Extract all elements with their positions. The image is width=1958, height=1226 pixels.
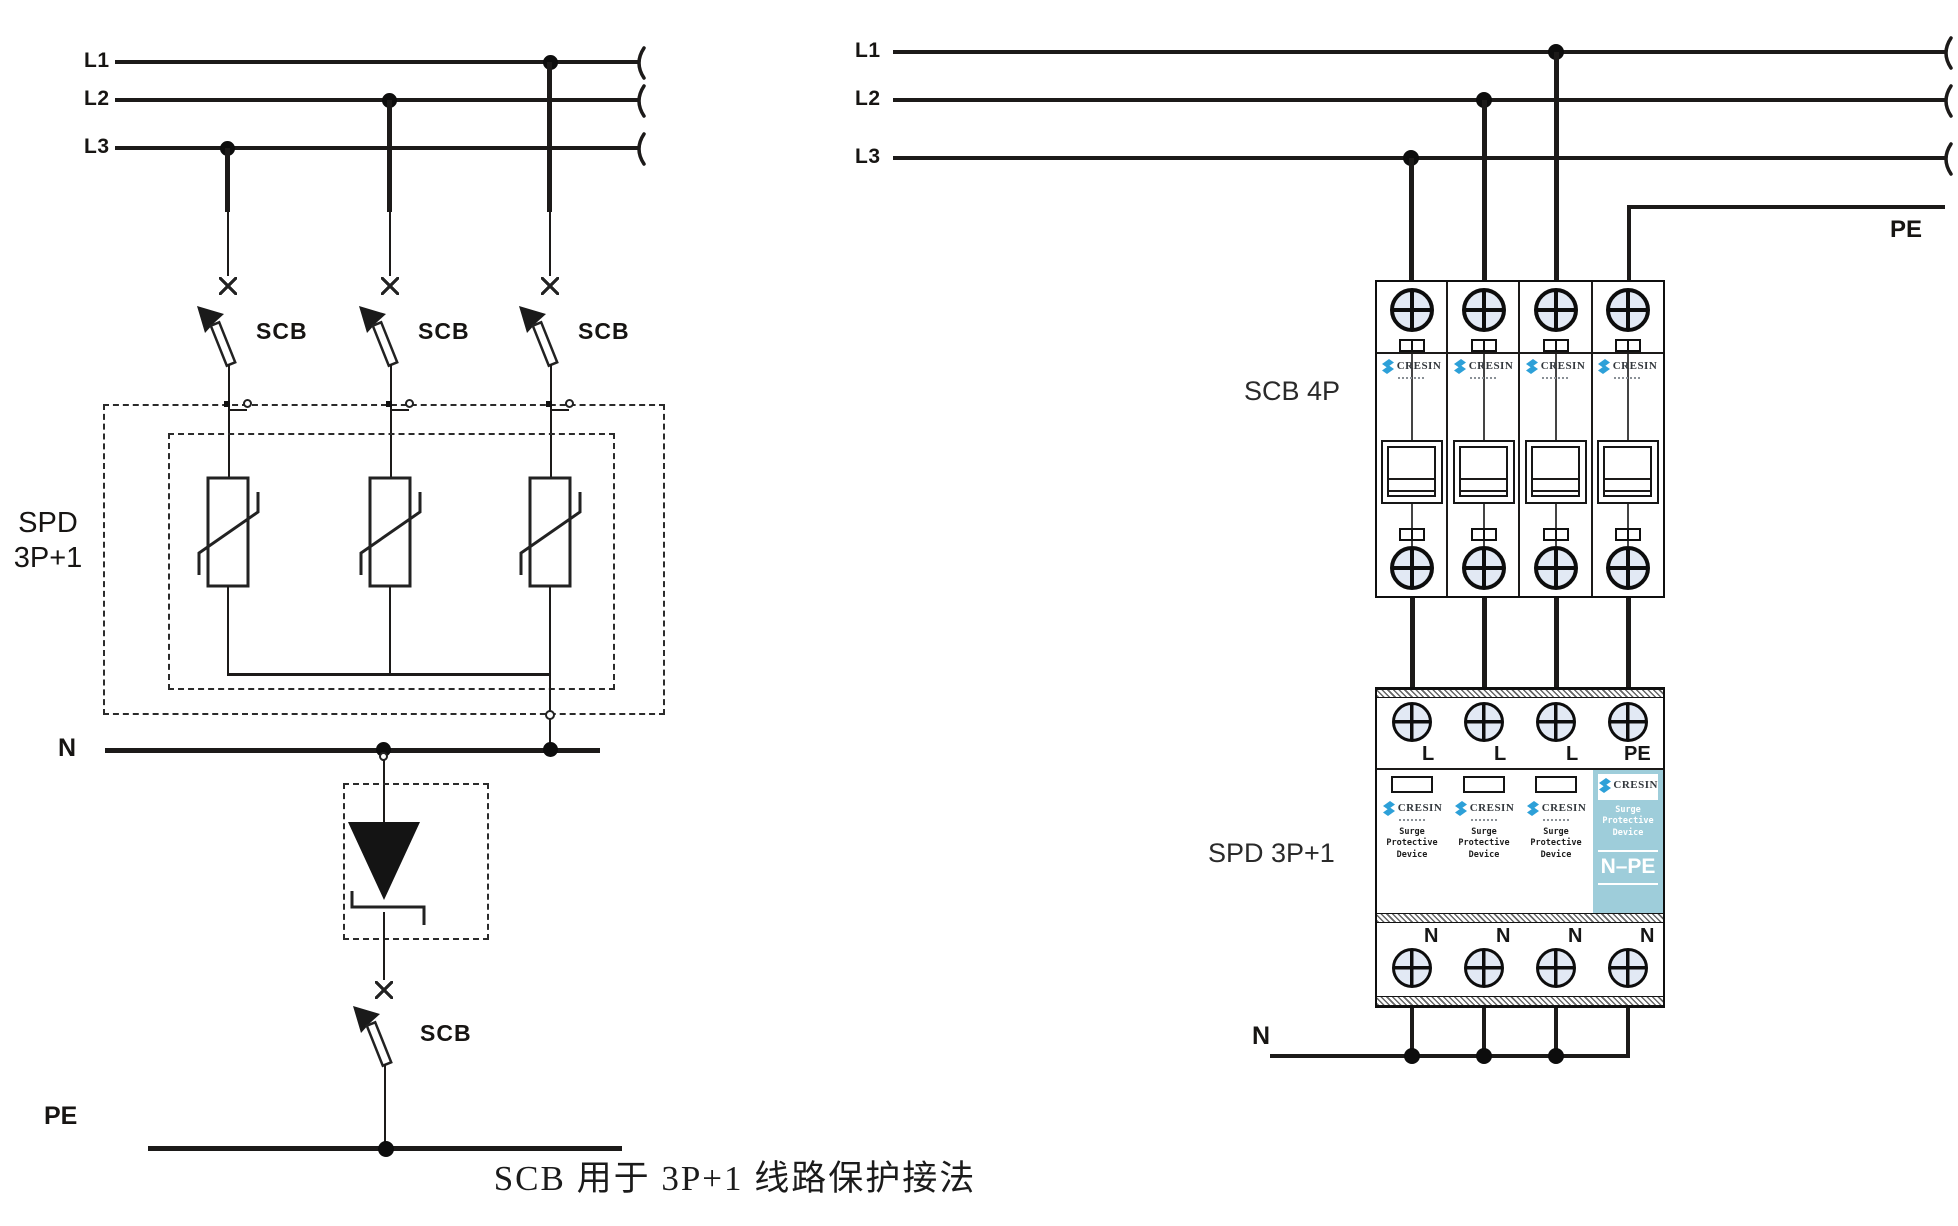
screw-terminal-icon	[1390, 288, 1434, 332]
scb-label: SCB	[418, 320, 470, 343]
line-break-arc-icon	[633, 84, 647, 118]
phase-label-l1: L1	[84, 50, 110, 71]
neutral-label: N	[58, 736, 76, 761]
phase-line-l1	[893, 50, 1945, 54]
wire	[547, 62, 552, 212]
terminal-notch	[1615, 528, 1641, 541]
wire	[549, 212, 551, 276]
brand-name: CRESIN	[1469, 361, 1514, 372]
brand-logo: CRESIN	[1383, 800, 1441, 821]
device-text-line1: Surge Protective	[1521, 827, 1591, 850]
spd-terminal-label: L	[1494, 744, 1506, 764]
wire	[1554, 52, 1559, 300]
screw-terminal-icon	[1390, 546, 1434, 590]
wire	[225, 148, 230, 212]
terminal-notch	[1543, 339, 1569, 352]
neutral-terminal-label: N	[1424, 926, 1438, 946]
junction-dot	[543, 742, 558, 757]
disconnect-x-icon	[541, 277, 559, 295]
handle-line	[1605, 490, 1650, 492]
breaker-handle-inner	[1603, 446, 1652, 497]
line-break-arc-icon	[1940, 142, 1954, 176]
phase-label-l2: L2	[855, 88, 881, 109]
wire	[387, 100, 392, 212]
brand-glyph-icon	[1382, 800, 1396, 817]
brand-logo: CRESIN	[1382, 358, 1440, 379]
line-break-arc-icon	[1940, 84, 1954, 118]
handle-line	[1461, 478, 1506, 480]
module-divider	[1377, 352, 1663, 354]
scb-label: SCB	[256, 320, 308, 343]
scb-4p-label: SCB 4P	[1244, 378, 1340, 405]
breaker-handle	[1453, 440, 1515, 504]
line-break-arc-icon	[633, 46, 647, 80]
screw-terminal-icon	[1608, 702, 1648, 742]
phase-label-l2: L2	[84, 88, 110, 109]
brand-name: CRESIN	[1470, 803, 1515, 814]
spd-window	[1391, 776, 1433, 793]
plug-contact-link	[551, 409, 569, 411]
plug-contact-link	[391, 409, 409, 411]
brand-glyph-icon	[1526, 800, 1540, 817]
plug-contact-circle	[545, 710, 555, 720]
breaker-handle-inner	[1459, 446, 1508, 497]
din-rail-strip	[1377, 913, 1663, 923]
handle-line	[1461, 490, 1506, 492]
junction-dot	[1404, 1048, 1420, 1064]
device-text-line2: Device	[1377, 850, 1447, 861]
diagram-caption: SCB 用于 3P+1 线路保护接法	[380, 1150, 1090, 1201]
plug-contact-circle	[405, 399, 414, 408]
plug-contact-circle	[565, 399, 574, 408]
device-text-line2: Device	[1449, 850, 1519, 861]
npe-brand-box: CRESIN	[1598, 774, 1658, 800]
screw-terminal-icon	[1462, 288, 1506, 332]
scb-label: SCB	[578, 320, 630, 343]
varistor-icon	[515, 473, 585, 593]
brand-name: CRESIN	[1398, 803, 1443, 814]
brand-glyph-icon	[1598, 777, 1611, 794]
wire	[1626, 1008, 1630, 1058]
breaker-handle	[1381, 440, 1443, 504]
plug-contact	[386, 401, 392, 407]
plug-contact-circle	[243, 399, 252, 408]
device-text-line1: Surge Protective	[1594, 805, 1662, 828]
brand-name: CRESIN	[1397, 361, 1442, 372]
disconnect-x-icon	[219, 277, 237, 295]
breaker-handle	[1525, 440, 1587, 504]
phase-line-l3	[115, 146, 638, 150]
pe-feed-line	[1627, 205, 1945, 209]
plug-contact-link	[229, 409, 247, 411]
device-type-text: Surge Protective Device	[1449, 827, 1519, 861]
wire	[549, 586, 551, 675]
phase-label-l3: L3	[855, 146, 881, 167]
neutral-line	[105, 748, 600, 753]
screw-terminal-icon	[1464, 948, 1504, 988]
phase-line-l2	[893, 98, 1945, 102]
handle-line	[1533, 490, 1578, 492]
handle-line	[1533, 478, 1578, 480]
device-type-text: Surge Protective Device	[1594, 805, 1662, 839]
left-schematic-diagram: L1 L2 L3 SCB SCB SCB	[0, 0, 700, 1226]
plug-contact	[224, 401, 230, 407]
spd-terminal-label: L	[1422, 744, 1434, 764]
din-rail-strip	[1377, 689, 1663, 698]
spd-window	[1535, 776, 1577, 793]
brand-logo: CRESIN	[1598, 358, 1656, 379]
brand-subtext-dots	[1470, 376, 1496, 379]
spd-terminal-label: PE	[1624, 744, 1651, 764]
brand-subtext-dots	[1471, 818, 1497, 821]
breaker-handle	[1597, 440, 1659, 504]
brand-subtext-dots	[1399, 818, 1425, 821]
screw-terminal-icon	[1606, 288, 1650, 332]
brand-glyph-icon	[1454, 800, 1468, 817]
brand-name: CRESIN	[1613, 780, 1658, 791]
neutral-bus-label: N	[1252, 1024, 1270, 1049]
terminal-notch	[1471, 339, 1497, 352]
screw-terminal-icon	[1534, 546, 1578, 590]
device-type-text: Surge Protective Device	[1377, 827, 1447, 861]
module-separator	[1518, 282, 1520, 596]
brand-name: CRESIN	[1541, 361, 1586, 372]
neutral-terminal-label: N	[1496, 926, 1510, 946]
phase-label-l3: L3	[84, 136, 110, 157]
junction-dot	[1548, 1048, 1564, 1064]
phase-line-l1	[115, 60, 638, 64]
screw-terminal-icon	[1536, 702, 1576, 742]
spd-label-line2: 3P+1	[4, 541, 92, 576]
brand-logo: CRESIN	[1455, 800, 1513, 821]
scb-label: SCB	[420, 1022, 472, 1045]
module-separator	[1591, 282, 1593, 596]
pe-label: PE	[44, 1104, 77, 1129]
npe-divider-line	[1598, 850, 1658, 852]
neutral-terminal-label: N	[1640, 926, 1654, 946]
screw-terminal-icon	[1534, 288, 1578, 332]
terminal-notch	[1615, 339, 1641, 352]
spd-label-line1: SPD	[4, 506, 92, 541]
common-bus-wire	[227, 673, 551, 676]
line-break-arc-icon	[1940, 36, 1954, 70]
brand-glyph-icon	[1453, 358, 1467, 375]
pe-feed-label: PE	[1890, 218, 1922, 242]
device-text-line2: Device	[1594, 828, 1662, 839]
wire	[1482, 100, 1487, 300]
device-text-line2: Device	[1521, 850, 1591, 861]
device-text-line1: Surge Protective	[1449, 827, 1519, 850]
screw-terminal-icon	[1462, 546, 1506, 590]
terminal-notch	[1399, 528, 1425, 541]
scb-arrow-icon	[193, 302, 247, 374]
handle-line	[1605, 478, 1650, 480]
device-type-text: Surge Protective Device	[1521, 827, 1591, 861]
plug-contact	[546, 401, 552, 407]
screw-terminal-icon	[1536, 948, 1576, 988]
neutral-terminal-label: N	[1568, 926, 1582, 946]
brand-subtext-dots	[1542, 376, 1568, 379]
wire	[384, 1064, 386, 1148]
varistor-icon	[193, 473, 263, 593]
brand-glyph-icon	[1597, 358, 1611, 375]
brand-glyph-icon	[1525, 358, 1539, 375]
phase-line-l2	[115, 98, 638, 102]
varistor-icon	[355, 473, 425, 593]
disconnect-x-icon	[375, 981, 393, 999]
wire	[389, 586, 391, 675]
wiring-diagram-page: L1 L2 L3 SCB SCB SCB	[0, 0, 1958, 1226]
brand-name: CRESIN	[1542, 803, 1587, 814]
terminal-notch	[1471, 528, 1497, 541]
scb-arrow-icon	[349, 1002, 403, 1074]
spd-terminal-label: L	[1566, 744, 1578, 764]
brand-logo: CRESIN	[1526, 358, 1584, 379]
wire	[1410, 598, 1415, 687]
wire	[227, 586, 229, 675]
screw-terminal-icon	[1606, 546, 1650, 590]
spd-window	[1463, 776, 1505, 793]
wire	[1482, 598, 1487, 687]
breaker-handle-inner	[1531, 446, 1580, 497]
spd-3p1-label: SPD 3P+1	[4, 506, 92, 576]
brand-subtext-dots	[1543, 818, 1569, 821]
scb-arrow-icon	[355, 302, 409, 374]
device-text-line1: Surge Protective	[1377, 827, 1447, 850]
disconnect-x-icon	[381, 277, 399, 295]
wire	[1626, 598, 1631, 687]
npe-module-label: N–PE	[1594, 855, 1662, 879]
terminal-notch	[1543, 528, 1569, 541]
wire	[383, 912, 385, 980]
brand-subtext-dots	[1614, 376, 1640, 379]
din-rail-strip	[1377, 996, 1663, 1006]
scb-arrow-icon	[515, 302, 569, 374]
screw-terminal-icon	[1392, 948, 1432, 988]
neutral-bus-line	[1270, 1054, 1630, 1058]
breaker-handle-inner	[1387, 446, 1436, 497]
screw-terminal-icon	[1608, 948, 1648, 988]
brand-logo: CRESIN	[1454, 358, 1512, 379]
wire	[227, 212, 229, 276]
wire	[1409, 158, 1414, 300]
npe-divider-line	[1598, 883, 1658, 885]
phase-line-l3	[893, 156, 1945, 160]
brand-logo: CRESIN	[1527, 800, 1585, 821]
wire	[1554, 598, 1559, 687]
module-separator	[1446, 282, 1448, 596]
brand-name: CRESIN	[1613, 361, 1658, 372]
phase-label-l1: L1	[855, 40, 881, 61]
spd-3p1-block-label: SPD 3P+1	[1208, 840, 1335, 867]
right-product-diagram: L1 L2 L3 PE SCB 4P	[830, 0, 1958, 1226]
brand-subtext-dots	[1398, 376, 1424, 379]
terminal-notch	[1399, 339, 1425, 352]
line-break-arc-icon	[633, 132, 647, 166]
brand-glyph-icon	[1381, 358, 1395, 375]
junction-dot	[1476, 1048, 1492, 1064]
wire	[389, 212, 391, 276]
screw-terminal-icon	[1392, 702, 1432, 742]
handle-line	[1389, 478, 1434, 480]
screw-terminal-icon	[1464, 702, 1504, 742]
handle-line	[1389, 490, 1434, 492]
